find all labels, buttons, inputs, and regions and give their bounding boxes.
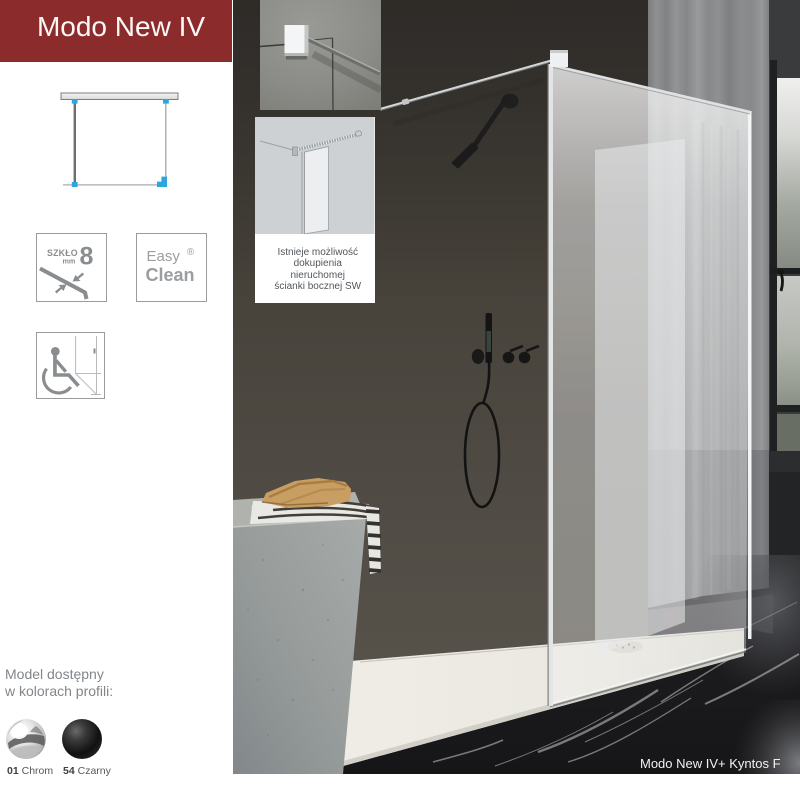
svg-text:mm: mm [63, 257, 76, 266]
svg-text:Modo New IV+ Kyntos F: Modo New IV+ Kyntos F [640, 756, 781, 771]
svg-text:8: 8 [80, 243, 94, 271]
